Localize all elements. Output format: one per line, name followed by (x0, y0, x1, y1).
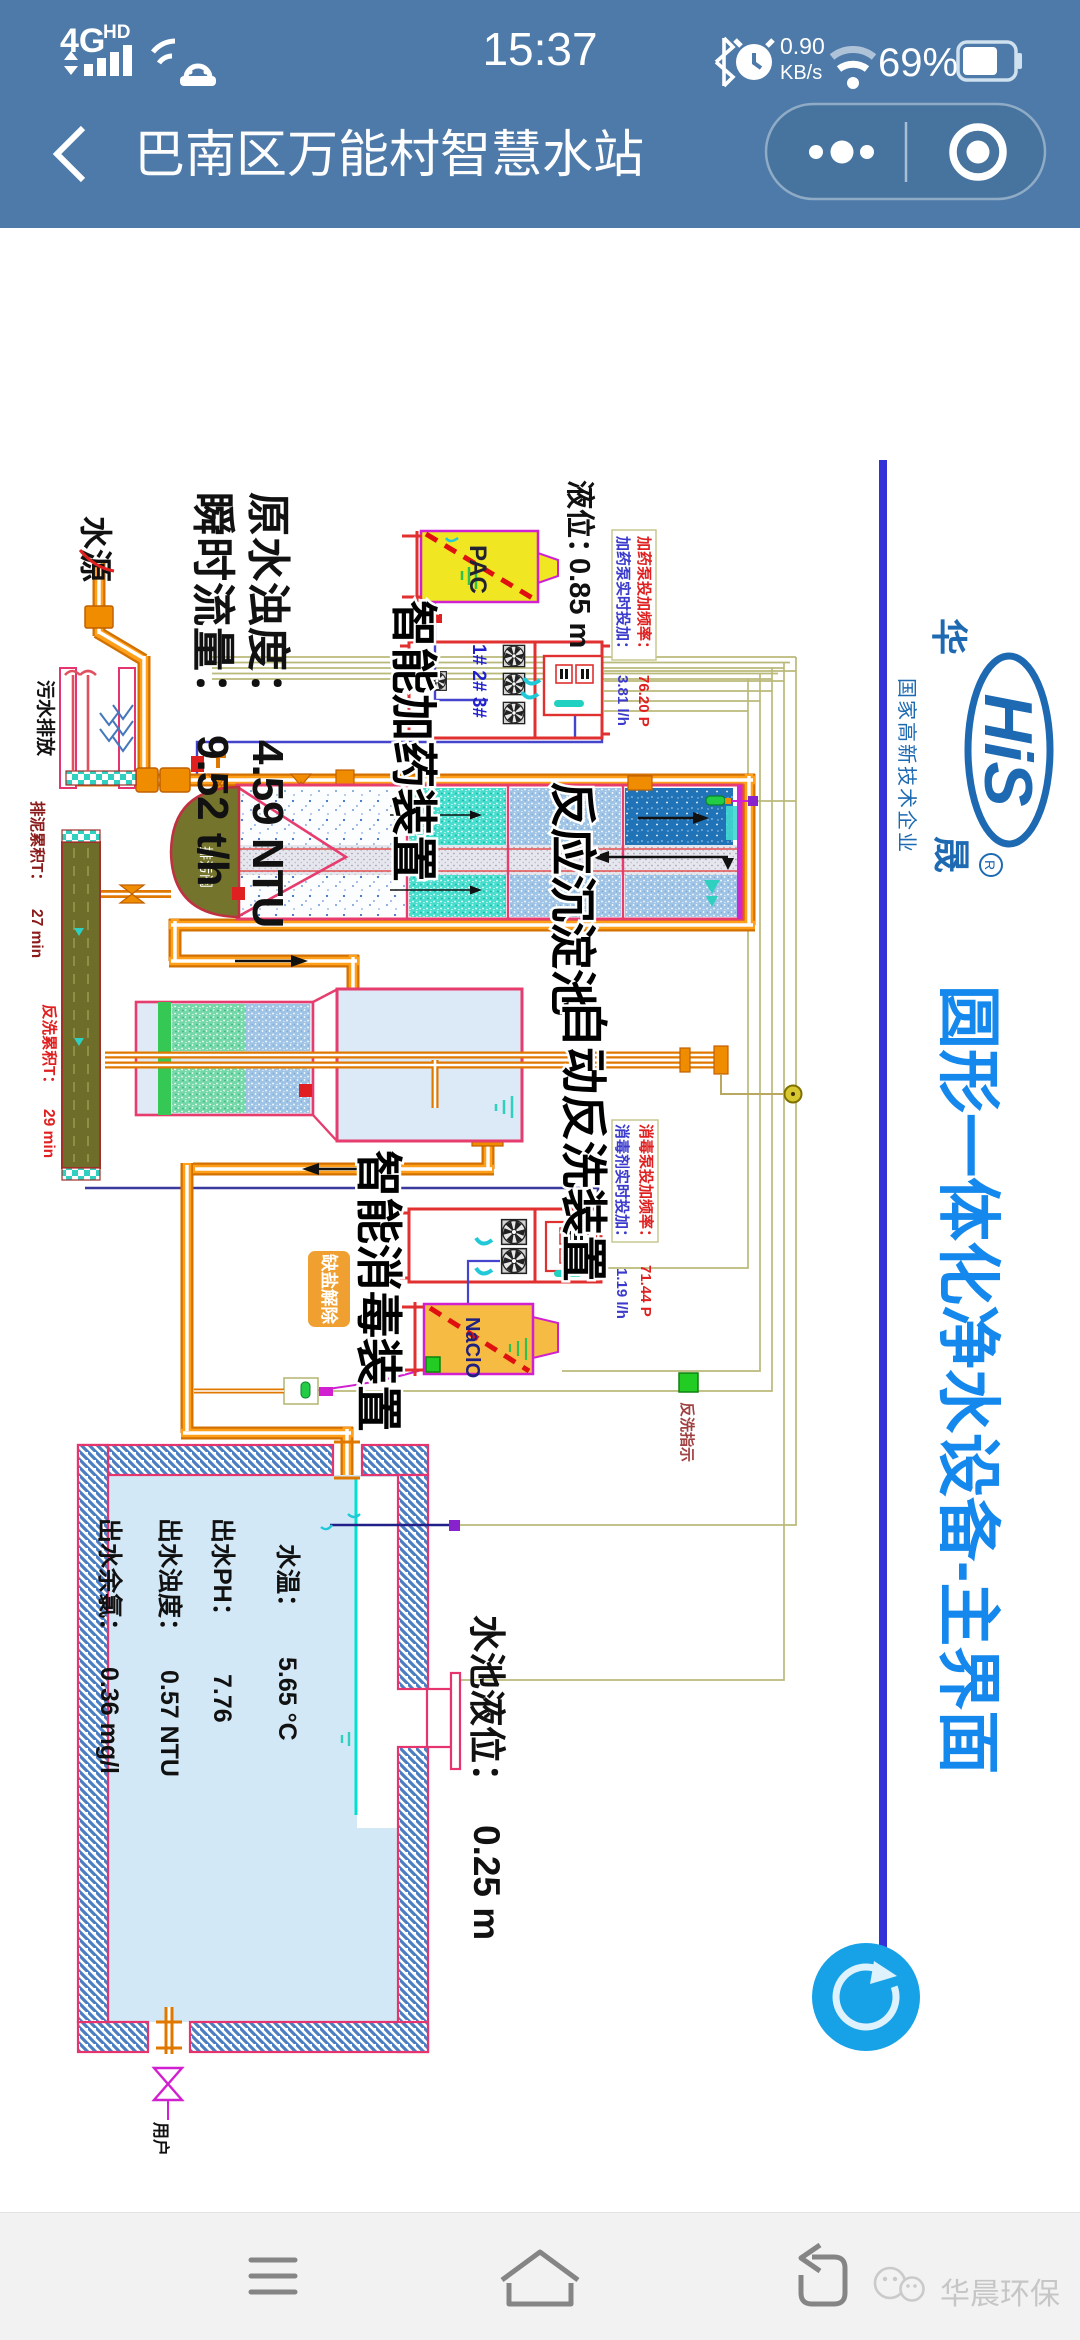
svg-text:76.20 P: 76.20 P (635, 675, 652, 727)
svg-text:华晨环保: 华晨环保 (940, 2278, 1060, 2311)
svg-text:出水余氯：: 出水余氯： (95, 1518, 124, 1643)
svg-text:0.57 NTU: 0.57 NTU (155, 1670, 183, 1777)
svg-text:69%: 69% (878, 41, 958, 85)
svg-text:巴南区万能村智慧水站: 巴南区万能村智慧水站 (134, 126, 644, 183)
svg-text:HD: HD (103, 22, 130, 43)
svg-text:水温：: 水温： (273, 1544, 301, 1619)
svg-text:27 min: 27 min (28, 909, 45, 958)
svg-text:15:37: 15:37 (482, 23, 597, 75)
svg-text:华: 华 (928, 618, 969, 655)
svg-text:R: R (982, 860, 998, 870)
svg-text:国家高新技术企业: 国家高新技术企业 (895, 678, 918, 854)
svg-text:HiS: HiS (970, 693, 1046, 806)
svg-text:3.81 l/h: 3.81 l/h (614, 675, 631, 726)
svg-text:0.85 m: 0.85 m (563, 558, 595, 648)
svg-text:用户: 用户 (151, 2122, 171, 2156)
svg-text:污水排放: 污水排放 (34, 680, 57, 757)
svg-text:出水PH：: 出水PH： (208, 1518, 236, 1628)
svg-text:晟: 晟 (930, 836, 971, 873)
svg-text:7.76: 7.76 (208, 1674, 236, 1723)
svg-text:加药泵实时投加：: 加药泵实时投加： (614, 535, 632, 656)
svg-text:排泥累积T：: 排泥累积T： (28, 801, 47, 888)
svg-text:0.36 mg/l: 0.36 mg/l (95, 1667, 123, 1774)
svg-text:29 min: 29 min (40, 1109, 57, 1158)
svg-text:4G: 4G (60, 22, 105, 60)
svg-text:加药泵投加频率：: 加药泵投加频率： (635, 535, 653, 656)
svg-text:智能加药装置: 智能加药装置 (387, 600, 440, 882)
svg-text:反洗累积T：: 反洗累积T： (40, 1004, 59, 1091)
svg-text:71.44 P: 71.44 P (637, 1265, 654, 1317)
svg-text:水源: 水源 (77, 516, 114, 582)
svg-text:反应沉淀池: 反应沉淀池 (546, 781, 599, 1016)
svg-text:瞬时流量：: 瞬时流量： (188, 492, 237, 717)
svg-text:出水浊度：: 出水浊度： (155, 1518, 184, 1643)
svg-text:自动反洗装置: 自动反洗装置 (557, 1000, 610, 1282)
svg-text:智能消毒装置: 智能消毒装置 (352, 1150, 405, 1432)
svg-text:5.65 °C: 5.65 °C (273, 1657, 301, 1741)
svg-text:NaClO: NaClO (461, 1317, 483, 1378)
svg-text:0.25 m: 0.25 m (466, 1825, 507, 1940)
svg-text:消毒剂实时投加：: 消毒剂实时投加： (613, 1124, 631, 1244)
svg-text:PAC: PAC (464, 545, 491, 594)
svg-text:消毒泵投加频率：: 消毒泵投加频率： (637, 1124, 655, 1244)
svg-text:圆形一体化净水设备-主界面: 圆形一体化净水设备-主界面 (932, 985, 1004, 1774)
svg-text:1.19 l/h: 1.19 l/h (613, 1268, 630, 1319)
svg-text:缺盐解除: 缺盐解除 (319, 1254, 339, 1324)
svg-text:1# 2# 3#: 1# 2# 3# (468, 644, 489, 718)
svg-text:液位：: 液位： (563, 480, 597, 567)
svg-text:9.52 t/h: 9.52 t/h (188, 735, 237, 887)
svg-text:反洗指示: 反洗指示 (678, 1402, 696, 1462)
svg-text:4.59 NTU: 4.59 NTU (243, 740, 292, 928)
svg-text:原水浊度：: 原水浊度： (243, 492, 292, 717)
svg-text:KB/s: KB/s (780, 62, 822, 84)
svg-text:0.90: 0.90 (780, 33, 825, 59)
svg-text:水池液位：: 水池液位： (466, 1615, 507, 1800)
